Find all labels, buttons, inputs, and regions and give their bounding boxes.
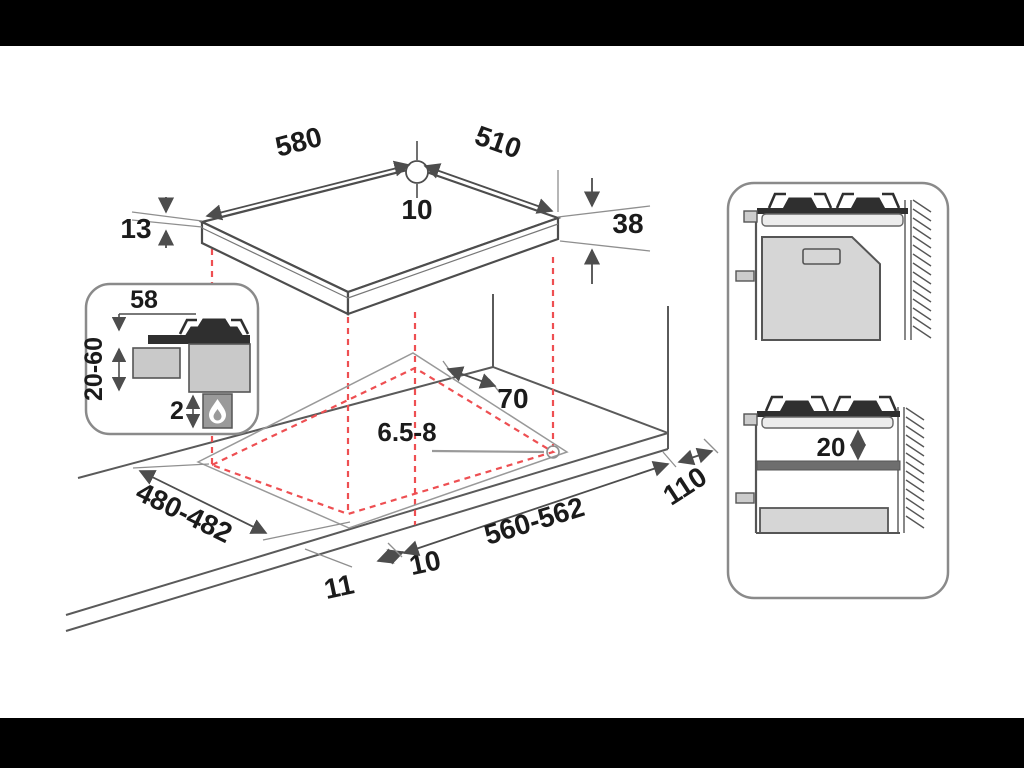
drawer-box: [760, 508, 888, 533]
dim-label-110: 110: [657, 461, 712, 512]
dim-label-hole-10: 10: [401, 194, 432, 225]
dim-label-510: 510: [471, 120, 525, 165]
hob-top-view: [202, 141, 558, 314]
oven-vent: [803, 249, 840, 264]
flame-drop-icon: [203, 394, 232, 428]
dim-label-2: 2: [170, 397, 184, 425]
inset-hob-glass: [148, 335, 250, 344]
side-view-panel: 20: [728, 183, 948, 598]
inset-detail-box: 58 20-60 2: [80, 284, 258, 434]
dim-label-580: 580: [272, 121, 325, 163]
dimension-13: 13: [120, 197, 202, 248]
dim-label-70: 70: [497, 383, 528, 414]
dimension-screw-hole: 6.5-8: [377, 417, 559, 458]
diagram-page: 580 510 10 13 38: [0, 0, 1024, 768]
hole-marker-circle: [406, 161, 428, 183]
inset-cabinet-box: [133, 348, 180, 378]
dim-label-480-482: 480-482: [131, 476, 237, 549]
shelf-bar: [757, 461, 900, 470]
dim-label-20: 20: [817, 432, 846, 462]
dim-label-58: 58: [130, 286, 158, 314]
dim-label-20-60: 20-60: [80, 337, 108, 401]
dim-label-13: 13: [120, 213, 151, 244]
dim-label-38: 38: [612, 208, 643, 239]
inset-hob-body: [189, 344, 250, 392]
dim-label-11: 11: [321, 568, 356, 604]
dimension-480-482: 480-482: [131, 464, 350, 549]
dim-label-screw-hole: 6.5-8: [377, 417, 436, 447]
installation-diagram-canvas: 580 510 10 13 38: [0, 0, 1024, 768]
dimension-38: 38: [558, 178, 650, 284]
